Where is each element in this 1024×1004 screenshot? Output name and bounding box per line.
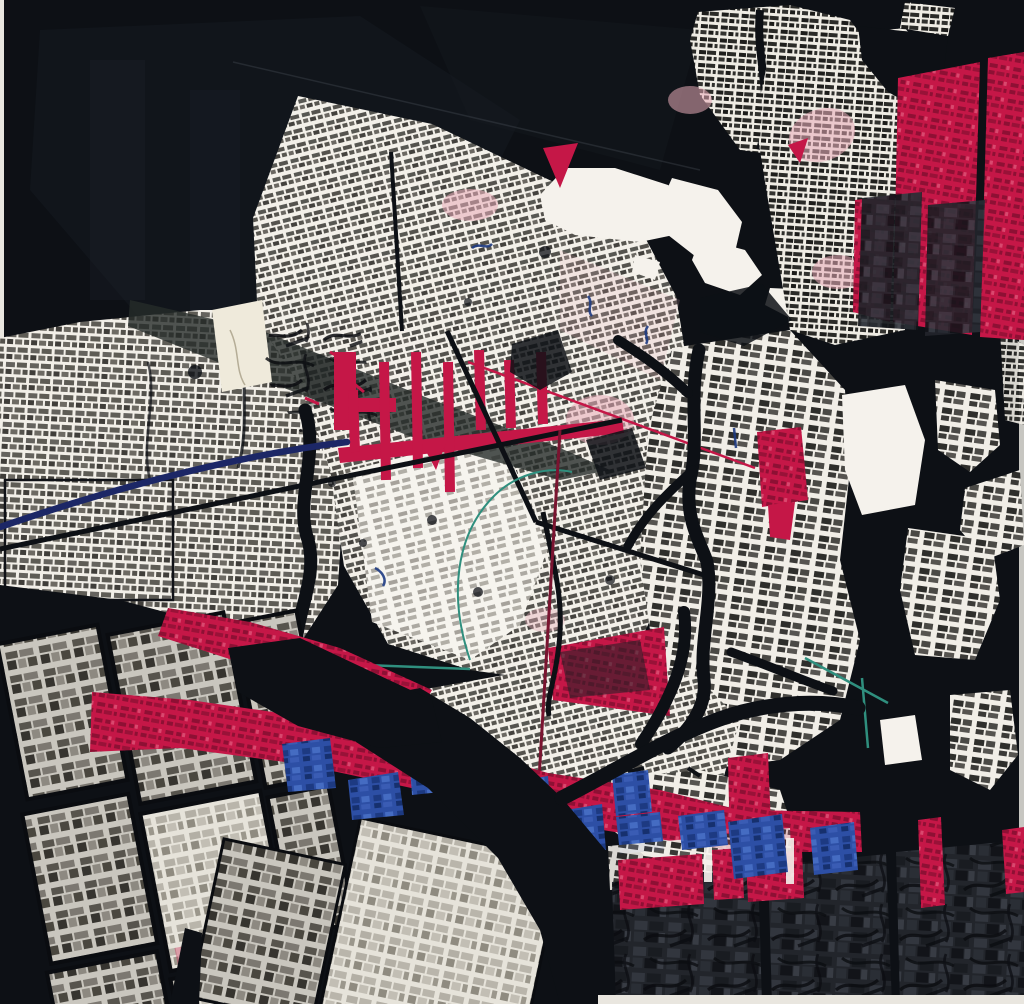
brush-streak xyxy=(190,90,240,320)
ink-dot xyxy=(427,515,437,525)
dark-overlay-panel xyxy=(925,200,985,336)
artwork-canvas xyxy=(0,0,1024,1004)
paper-gap xyxy=(786,838,794,884)
island xyxy=(880,715,922,765)
blue-patch xyxy=(282,738,336,792)
ink-dot xyxy=(539,246,551,258)
blue-tile xyxy=(810,822,858,875)
ink-dot xyxy=(328,479,336,487)
park-blob xyxy=(188,365,202,379)
ink-dot xyxy=(473,587,483,597)
map-collage-artwork xyxy=(0,0,1024,1004)
crimson-patch xyxy=(757,427,808,507)
crimson-strip xyxy=(618,854,704,910)
blue-tile xyxy=(678,810,728,850)
blue-tile xyxy=(728,814,788,879)
ink-dot xyxy=(605,575,615,585)
pink-blob xyxy=(442,189,498,221)
ink-dot xyxy=(464,298,472,306)
crimson-column xyxy=(918,817,945,908)
blue-patch xyxy=(348,772,404,820)
paper-gap xyxy=(704,842,712,882)
blank-survey-sheet xyxy=(212,300,272,392)
pink-blob xyxy=(668,86,712,114)
blue-patch xyxy=(612,770,652,816)
ink-dot xyxy=(359,539,367,547)
canvas-edge-bottom xyxy=(598,995,1024,1004)
brush-streak xyxy=(90,60,145,300)
dark-overlay-panel xyxy=(858,192,922,330)
